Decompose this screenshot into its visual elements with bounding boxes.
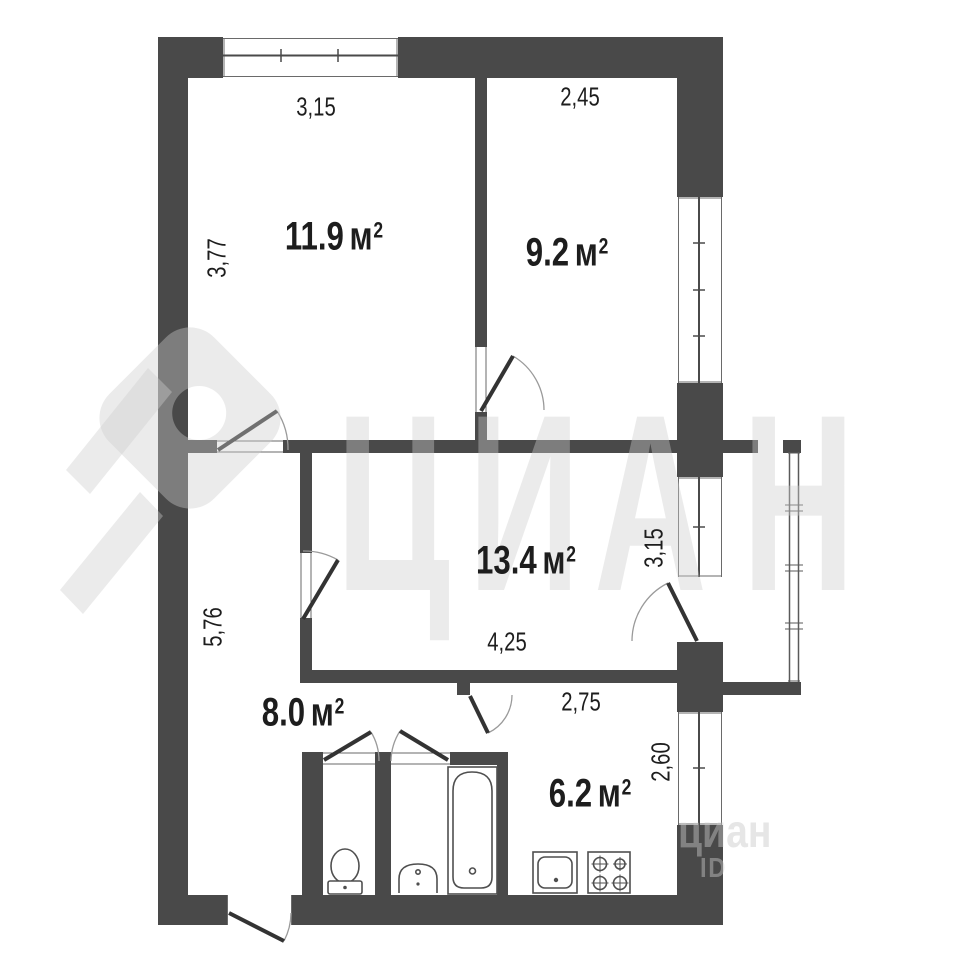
area-value: 8.0	[262, 691, 305, 735]
wall-segment	[300, 670, 677, 683]
stove-icon	[588, 852, 630, 893]
watermark-stripe	[60, 492, 163, 614]
wall-segment	[300, 618, 312, 670]
door-kitchen	[470, 696, 488, 733]
toilet-icon	[328, 849, 362, 894]
area-label-room-a: 11.9м2	[285, 215, 383, 260]
dim-label: 3,15	[639, 528, 670, 567]
area-unit: м	[598, 772, 621, 816]
area-label-hallway: 8.0м2	[262, 691, 345, 736]
window-room-b	[677, 197, 723, 383]
dim-label: 4,25	[487, 627, 526, 658]
wall-segment	[457, 683, 470, 695]
wall-segment	[475, 78, 487, 347]
area-sup: 2	[599, 233, 609, 258]
area-label-room-b: 9.2м2	[526, 231, 609, 276]
dim-label: 2,45	[560, 82, 599, 113]
wall-segment	[450, 752, 508, 765]
wall-segment	[677, 37, 723, 197]
watermark-letter: Ц	[336, 378, 450, 630]
wall-segment	[497, 765, 508, 895]
watermark-letter: А	[594, 378, 707, 630]
door-hall-to-room-c	[303, 560, 338, 619]
wall-segment	[292, 895, 723, 925]
watermark-letter: И	[468, 378, 580, 630]
bathtub-icon	[448, 767, 497, 894]
area-sup: 2	[373, 217, 383, 242]
area-sup: 2	[335, 693, 345, 718]
floor-plan-page: Ц И А Н циан ID 11.9м2 9.2м2 13.4м2 8.0м…	[0, 0, 960, 960]
area-unit: м	[311, 691, 334, 735]
dim-label: 3,15	[296, 92, 335, 123]
wall-segment	[375, 752, 391, 895]
wall-segment	[398, 37, 723, 78]
area-unit: м	[350, 215, 373, 259]
area-label-room-c: 13.4м2	[476, 539, 576, 584]
wall-segment	[158, 895, 227, 925]
dim-label: 2,75	[561, 687, 600, 718]
area-unit: м	[542, 539, 565, 583]
watermark-brand-small: циан	[678, 808, 771, 854]
area-label-kitchen: 6.2м2	[549, 772, 632, 817]
door-bathroom	[400, 731, 448, 760]
dim-label: 2,60	[646, 742, 677, 781]
area-sup: 2	[622, 774, 632, 799]
area-sup: 2	[566, 541, 576, 566]
watermark-letter: Н	[742, 378, 855, 630]
area-unit: м	[575, 231, 598, 275]
bathroom-sink-icon	[399, 864, 437, 893]
wall-segment	[723, 682, 801, 695]
area-value: 13.4	[476, 539, 537, 583]
kitchen-sink-icon	[533, 852, 577, 893]
wall-segment	[302, 752, 323, 895]
door-toilet	[324, 732, 371, 760]
dim-label: 3,77	[202, 238, 233, 277]
area-value: 11.9	[285, 215, 344, 259]
wall-segment	[300, 453, 312, 553]
area-value: 6.2	[549, 772, 592, 816]
dim-label: 5,76	[198, 607, 229, 646]
watermark-id-small: ID	[700, 854, 727, 882]
wall-segment	[677, 642, 723, 712]
area-value: 9.2	[526, 231, 569, 275]
window-top	[223, 37, 398, 78]
